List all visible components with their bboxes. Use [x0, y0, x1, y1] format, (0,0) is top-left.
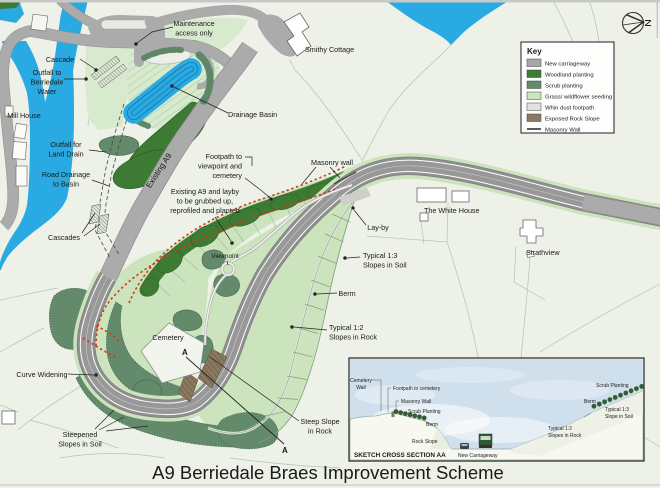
- svg-text:Scrub Planting: Scrub Planting: [596, 383, 629, 389]
- svg-text:to be grubbed up,: to be grubbed up,: [177, 196, 233, 205]
- svg-text:Footpath to: Footpath to: [206, 152, 242, 161]
- svg-text:cemetery: cemetery: [212, 171, 242, 180]
- svg-text:Typical 1:2: Typical 1:2: [329, 323, 363, 332]
- svg-text:Typical 1:2: Typical 1:2: [548, 426, 572, 432]
- svg-text:Typical 1:3: Typical 1:3: [605, 407, 629, 413]
- svg-text:Exposed Rock Slope: Exposed Rock Slope: [545, 116, 600, 122]
- svg-text:Masonry Wall: Masonry Wall: [401, 399, 431, 405]
- svg-text:Viewpoint: Viewpoint: [211, 253, 239, 260]
- svg-text:Mill House: Mill House: [7, 111, 41, 120]
- svg-text:Drainage Basin: Drainage Basin: [228, 110, 277, 119]
- svg-text:viewpoint and: viewpoint and: [198, 161, 242, 170]
- svg-text:Slopes in Soil: Slopes in Soil: [58, 439, 102, 448]
- svg-text:Footpath to cemetery: Footpath to cemetery: [393, 386, 441, 392]
- svg-text:Berm: Berm: [338, 289, 355, 298]
- svg-text:Rock Slope: Rock Slope: [412, 439, 438, 445]
- svg-text:Berm: Berm: [584, 399, 596, 405]
- svg-text:Slopes in Soil: Slopes in Soil: [363, 260, 407, 269]
- svg-text:Strathview: Strathview: [526, 248, 560, 257]
- svg-text:Masonry wall: Masonry wall: [311, 158, 353, 167]
- svg-text:Existing A9 and layby: Existing A9 and layby: [171, 187, 240, 196]
- svg-text:Cascade: Cascade: [46, 55, 74, 64]
- svg-text:Land Drain: Land Drain: [48, 149, 83, 158]
- svg-text:Smithy Cottage: Smithy Cottage: [305, 45, 354, 54]
- svg-text:Berriedale: Berriedale: [31, 77, 64, 86]
- svg-text:Slope in Soil: Slope in Soil: [605, 414, 633, 420]
- svg-text:Whin dust footpath: Whin dust footpath: [545, 105, 594, 111]
- svg-text:New Carriageway: New Carriageway: [458, 453, 498, 459]
- svg-text:Masonry Wall: Masonry Wall: [545, 127, 580, 133]
- svg-text:Slopes in Rock: Slopes in Rock: [329, 332, 377, 341]
- svg-text:reprofiled and planted: reprofiled and planted: [170, 206, 240, 215]
- svg-text:Water: Water: [38, 87, 58, 96]
- svg-text:Road Drainage: Road Drainage: [42, 170, 90, 179]
- svg-text:A: A: [282, 446, 288, 455]
- svg-text:in Rock: in Rock: [308, 426, 332, 435]
- svg-text:Grass/ wildflower seeding: Grass/ wildflower seeding: [545, 94, 612, 100]
- svg-text:Cemetery: Cemetery: [350, 378, 372, 384]
- svg-text:Typical 1:3: Typical 1:3: [363, 251, 397, 260]
- svg-text:New carriageway: New carriageway: [545, 61, 590, 67]
- svg-text:Woodland planting: Woodland planting: [545, 72, 594, 78]
- svg-text:A: A: [182, 348, 188, 357]
- svg-text:Scrub Planting: Scrub Planting: [408, 409, 441, 415]
- svg-text:access only: access only: [175, 28, 213, 37]
- svg-text:Berm: Berm: [426, 422, 438, 428]
- svg-text:Steep Slope: Steep Slope: [300, 417, 339, 426]
- svg-text:A9 Berriedale Braes Improvemen: A9 Berriedale Braes Improvement Scheme: [152, 462, 504, 483]
- svg-text:Maintenance: Maintenance: [173, 19, 214, 28]
- svg-text:Scrub planting: Scrub planting: [545, 83, 583, 89]
- svg-text:The White House: The White House: [424, 206, 480, 215]
- svg-text:SKETCH CROSS SECTION AA: SKETCH CROSS SECTION AA: [354, 452, 446, 459]
- svg-text:Slopes in Rock: Slopes in Rock: [548, 433, 582, 439]
- svg-text:Curve Widening: Curve Widening: [16, 370, 67, 379]
- svg-text:Cascades: Cascades: [48, 233, 80, 242]
- svg-text:to Basin: to Basin: [53, 179, 79, 188]
- svg-text:Lay-by: Lay-by: [367, 223, 389, 232]
- svg-text:Wall: Wall: [356, 385, 366, 391]
- svg-text:Cemetery: Cemetery: [152, 333, 184, 342]
- svg-text:Outfall for: Outfall for: [50, 140, 82, 149]
- svg-text:Outfall to: Outfall to: [33, 68, 62, 77]
- svg-text:Steepened: Steepened: [63, 430, 98, 439]
- svg-text:Key: Key: [527, 47, 542, 56]
